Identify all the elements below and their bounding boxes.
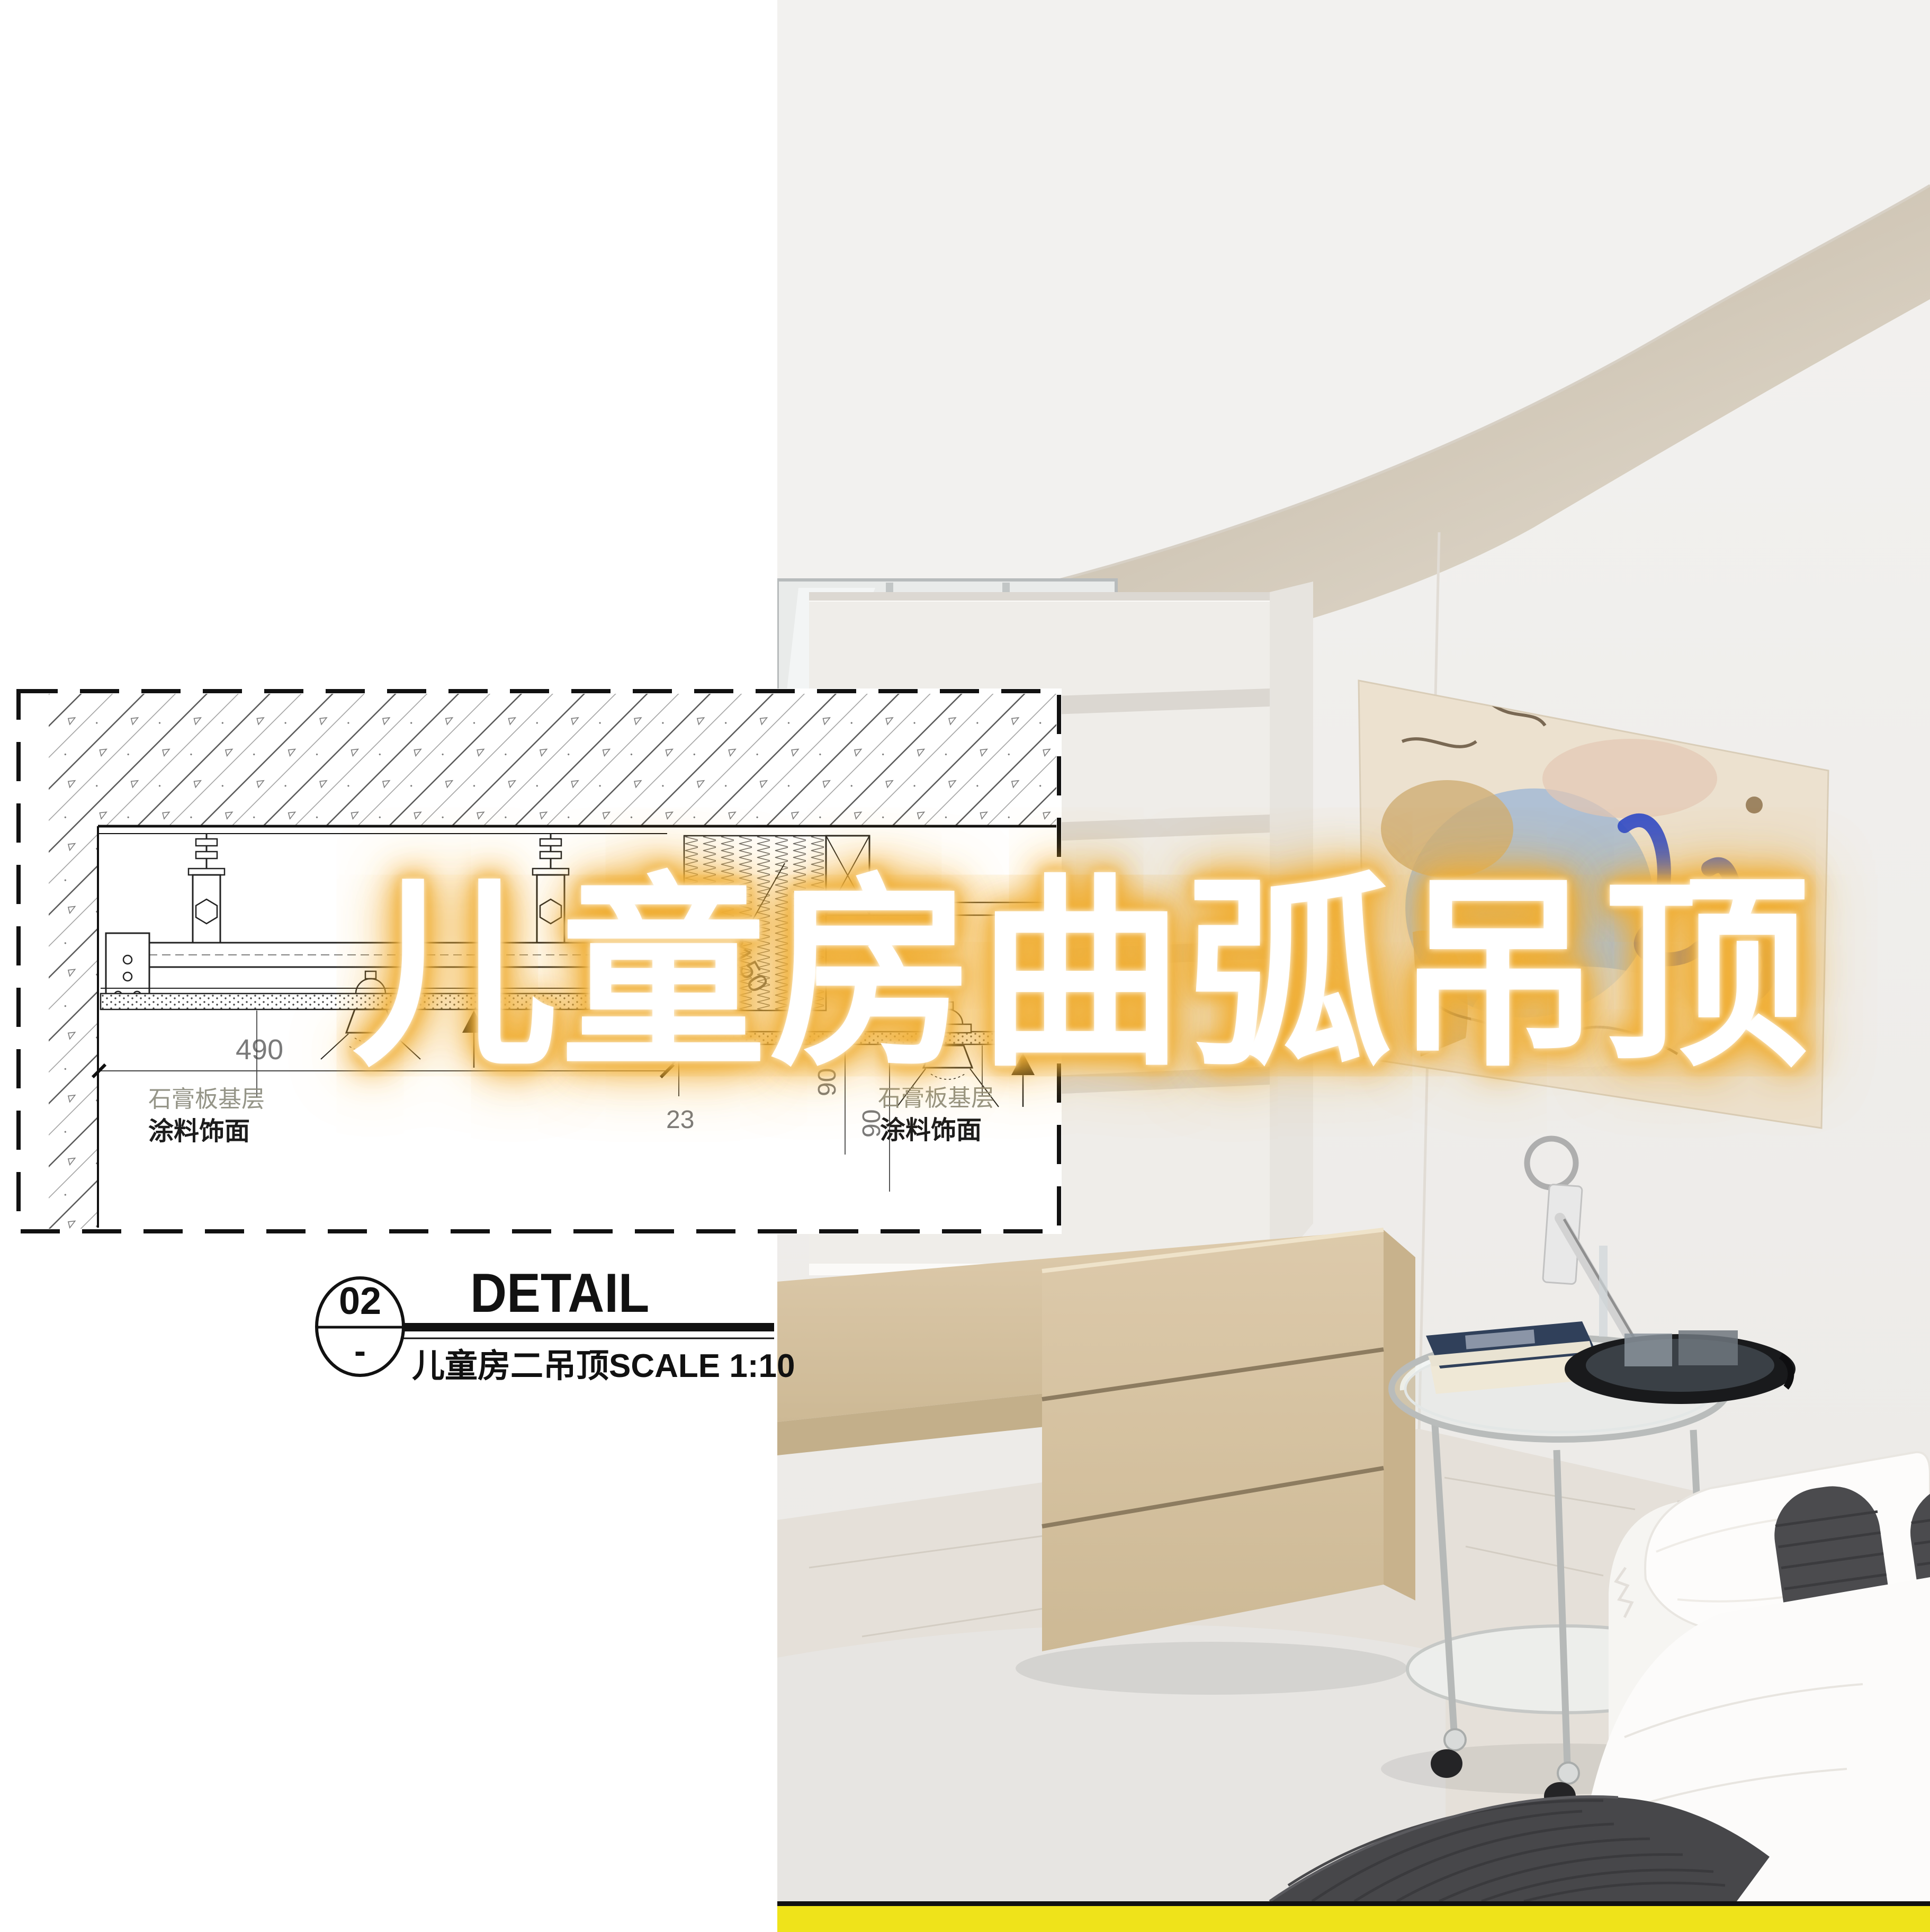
detail-ref-number: 02 [339, 1280, 381, 1322]
detail-drawing-name: 儿童房二吊顶 [412, 1348, 609, 1384]
label-paint-right: 涂料饰面 [880, 1116, 982, 1144]
concrete-wall-hatch [49, 694, 98, 1229]
label-gypsum-left: 石膏板基层 [148, 1086, 265, 1112]
bottom-accent-bar [777, 1901, 1930, 1932]
dim-width-text: 490 [236, 1034, 283, 1066]
headline-text: 儿童房曲弧吊顶 [352, 861, 1812, 1090]
headline: 儿童房曲弧吊顶 [352, 859, 1845, 1113]
detail-ref-sheet: - [354, 1331, 366, 1370]
post-canvas: R150 490 23 90 [0, 0, 1930, 1932]
concrete-slab-hatch [98, 694, 1056, 826]
detail-title-block: 02 - DETAIL 儿童房二吊顶 SCALE 1:10 [238, 1268, 831, 1406]
detail-heading: DETAIL [470, 1268, 649, 1324]
glass-vase [1599, 1246, 1608, 1337]
detail-scale-label: SCALE 1:10 [609, 1348, 795, 1384]
title-bar-thick [403, 1323, 774, 1331]
label-paint-left: 涂料饰面 [148, 1117, 250, 1146]
